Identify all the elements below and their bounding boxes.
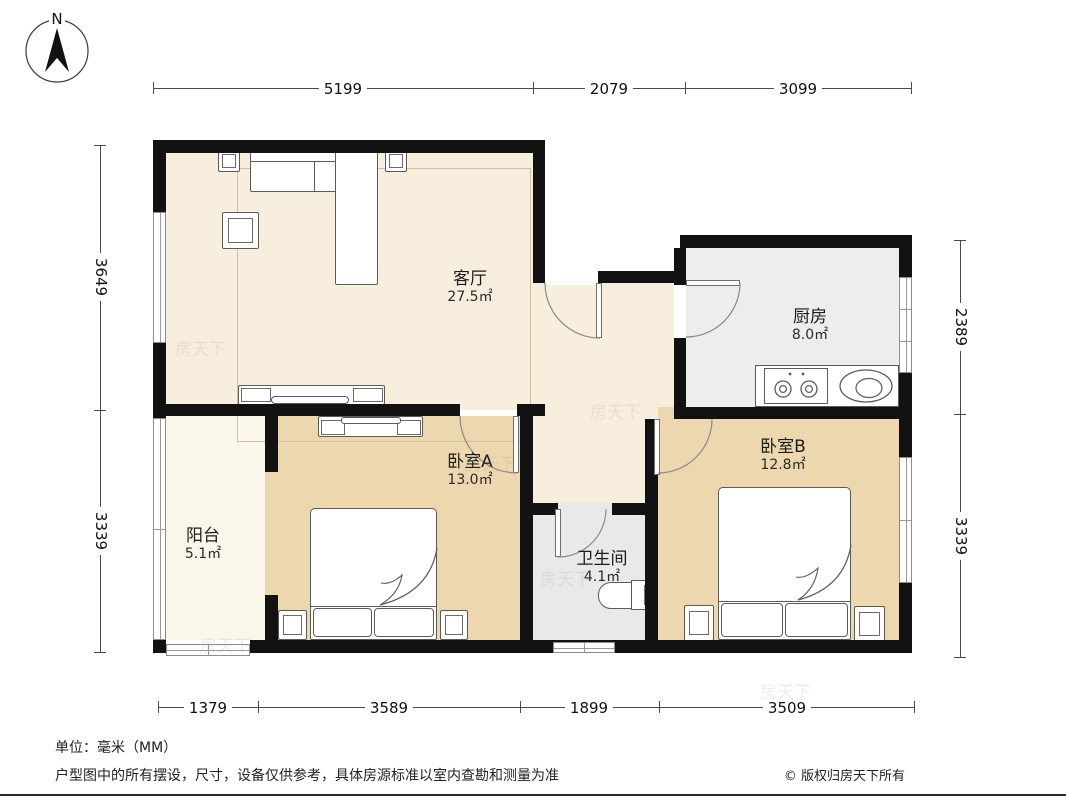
window-mullion bbox=[900, 520, 911, 521]
wall bbox=[153, 140, 166, 212]
room-name: 卫生间 bbox=[577, 549, 628, 569]
compass-north-label: N bbox=[49, 10, 65, 28]
console-end-cap bbox=[353, 388, 383, 402]
room-label-bedroom-b: 卧室B 12.8㎡ bbox=[760, 437, 806, 474]
wall bbox=[533, 140, 545, 283]
window-bedroom-b-right bbox=[899, 457, 912, 583]
pillow bbox=[313, 608, 372, 637]
window-living-left bbox=[153, 212, 166, 343]
window-pane-line bbox=[906, 278, 907, 372]
window-bathroom-bottom bbox=[553, 642, 615, 653]
tv-bedroom-a bbox=[341, 417, 401, 424]
nightstand-top bbox=[689, 611, 709, 635]
room-label-bedroom-a: 卧室A 13.0㎡ bbox=[447, 452, 493, 489]
dim-tick bbox=[520, 701, 521, 713]
dim-tick bbox=[911, 82, 912, 94]
compass-needle-icon bbox=[45, 28, 69, 72]
pillow bbox=[721, 603, 783, 637]
room-name: 卧室B bbox=[760, 437, 806, 457]
room-area: 4.1㎡ bbox=[577, 569, 628, 586]
console-end-cap bbox=[241, 388, 271, 402]
bottom-border bbox=[0, 794, 1066, 796]
dim-tick bbox=[533, 82, 534, 94]
dim-label-right-2: 3339 bbox=[952, 512, 970, 560]
room-label-living: 客厅 27.5㎡ bbox=[447, 269, 492, 306]
side-table-left bbox=[218, 150, 240, 172]
door-panel-bedroom-a bbox=[513, 416, 519, 473]
dim-label-bottom-4: 3509 bbox=[763, 699, 811, 717]
window-mullion bbox=[208, 645, 209, 655]
door-panel-bedroom-b bbox=[654, 419, 660, 475]
north-compass bbox=[26, 20, 88, 82]
wall bbox=[265, 595, 278, 640]
wall bbox=[598, 271, 686, 283]
window-mullion bbox=[900, 309, 911, 310]
dim-tick bbox=[954, 240, 966, 241]
room-name: 客厅 bbox=[447, 269, 492, 289]
entry-opening bbox=[545, 269, 598, 285]
dim-line-left bbox=[100, 145, 101, 653]
side-table-top bbox=[389, 154, 403, 168]
pillow bbox=[785, 603, 848, 637]
dim-label-left-1: 3649 bbox=[92, 253, 110, 301]
stove bbox=[764, 368, 828, 404]
window-balcony-bottom bbox=[166, 644, 250, 656]
dim-tick bbox=[94, 410, 106, 411]
wall bbox=[520, 416, 533, 640]
disclaimer-text: 户型图中的所有摆设，尺寸，设备仅供参考，具体房源标准以室内查勘和测量为准 bbox=[55, 765, 559, 785]
window-mullion bbox=[900, 341, 911, 342]
wall bbox=[899, 373, 912, 457]
wall bbox=[674, 248, 686, 285]
balcony-passage bbox=[265, 470, 278, 597]
wall bbox=[153, 404, 278, 416]
room-area: 8.0㎡ bbox=[792, 327, 828, 344]
window-kitchen-right bbox=[899, 277, 912, 373]
bed-foot-line bbox=[311, 606, 436, 607]
dim-tick bbox=[258, 701, 259, 713]
unit-note: 单位：毫米（MM） bbox=[55, 737, 177, 757]
room-area: 27.5㎡ bbox=[447, 289, 492, 306]
room-area: 13.0㎡ bbox=[447, 472, 493, 489]
tv-living bbox=[271, 396, 349, 404]
door-panel-kitchen bbox=[686, 280, 740, 286]
dim-tick bbox=[954, 414, 966, 415]
wall bbox=[153, 640, 166, 653]
dim-label-top-3: 3099 bbox=[774, 80, 822, 98]
window-mullion bbox=[154, 529, 165, 530]
dim-tick bbox=[685, 82, 686, 94]
room-name: 阳台 bbox=[185, 526, 221, 546]
dim-tick bbox=[914, 701, 915, 713]
dim-tick bbox=[158, 701, 159, 713]
room-label-balcony: 阳台 5.1㎡ bbox=[185, 526, 221, 563]
room-name: 厨房 bbox=[792, 307, 828, 327]
pillow bbox=[374, 608, 434, 637]
window-pane-line bbox=[160, 213, 161, 342]
armchair bbox=[222, 212, 259, 249]
side-table-top bbox=[222, 154, 236, 168]
dim-tick bbox=[94, 145, 106, 146]
dim-tick bbox=[153, 82, 154, 94]
door-panel-bathroom bbox=[555, 509, 561, 557]
wall bbox=[680, 235, 912, 248]
nightstand bbox=[854, 606, 885, 642]
armchair-seat bbox=[228, 218, 253, 243]
wall bbox=[278, 404, 460, 416]
window-balcony-left bbox=[153, 418, 166, 640]
bed-foot-line bbox=[719, 601, 850, 602]
nightstand bbox=[278, 610, 307, 640]
room-label-kitchen: 厨房 8.0㎡ bbox=[792, 307, 828, 344]
floor-plan: N 客厅 27.5㎡ 厨房 8.0㎡ 卧室A 13.0㎡ 卧室B 12.8㎡ 卫… bbox=[0, 0, 1066, 800]
nightstand-top bbox=[445, 615, 463, 635]
door-panel-entry bbox=[596, 283, 602, 338]
wall bbox=[265, 416, 278, 472]
nightstand bbox=[440, 610, 468, 640]
wall bbox=[520, 503, 558, 515]
window-mullion bbox=[584, 643, 585, 652]
dim-tick bbox=[659, 701, 660, 713]
compass-circle bbox=[26, 20, 88, 82]
wall bbox=[517, 404, 545, 416]
dim-label-left-2: 3339 bbox=[92, 507, 110, 555]
wall bbox=[153, 140, 545, 153]
room-label-bathroom: 卫生间 4.1㎡ bbox=[577, 549, 628, 586]
room-area: 12.8㎡ bbox=[760, 457, 806, 474]
dim-tick bbox=[94, 652, 106, 653]
sofa-chaise bbox=[335, 150, 378, 285]
sofa-cushion-divider bbox=[314, 161, 315, 191]
dim-tick bbox=[954, 657, 966, 658]
dim-label-top-1: 5199 bbox=[319, 80, 367, 98]
dim-label-bottom-3: 1899 bbox=[565, 699, 613, 717]
nightstand-top bbox=[859, 612, 880, 636]
dim-label-right-1: 2389 bbox=[952, 303, 970, 351]
side-table-right bbox=[385, 150, 407, 172]
copyright-text: © 版权归房天下所有 bbox=[784, 765, 905, 784]
wall bbox=[682, 407, 899, 419]
dim-label-top-2: 2079 bbox=[585, 80, 633, 98]
nightstand-top bbox=[283, 615, 302, 635]
wall bbox=[899, 235, 912, 277]
dim-label-bottom-1: 1379 bbox=[184, 699, 232, 717]
room-name: 卧室A bbox=[447, 452, 493, 472]
nightstand bbox=[684, 605, 714, 641]
room-area: 5.1㎡ bbox=[185, 546, 221, 563]
dim-label-bottom-2: 3589 bbox=[365, 699, 413, 717]
